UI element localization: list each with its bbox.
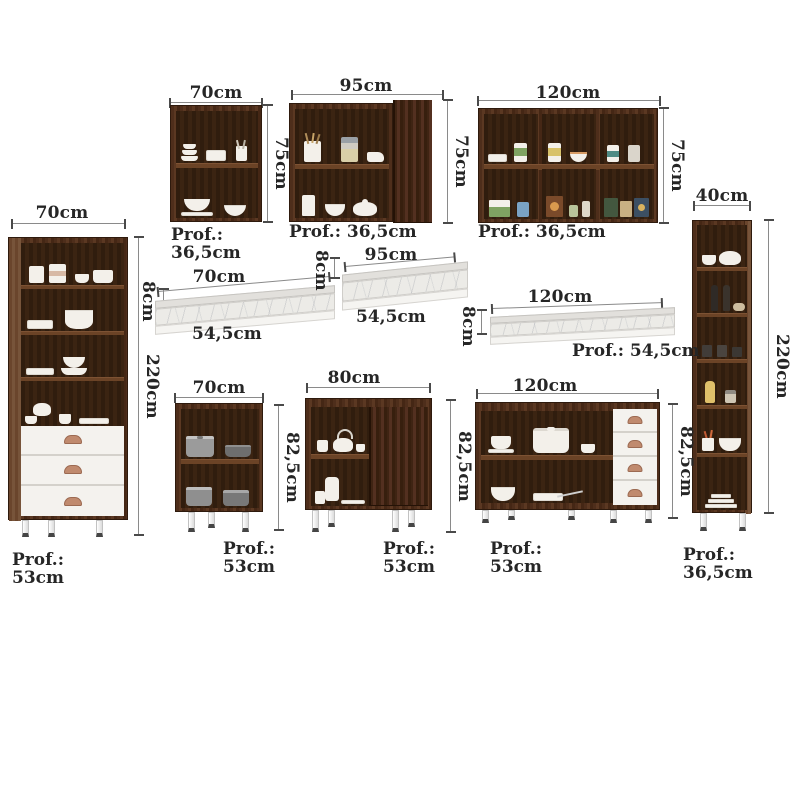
- cup-decoration: [75, 274, 89, 283]
- spoon-decoration: [557, 490, 583, 497]
- height-dimension-line: [267, 105, 268, 222]
- cabinet-body: [289, 103, 393, 222]
- width-dimension-line: [478, 100, 660, 101]
- shelf-compartment: [311, 459, 369, 506]
- width-dimension-line: [477, 393, 658, 394]
- cabinet-body: [478, 108, 658, 223]
- shelf-compartment: [176, 111, 258, 163]
- teapot-decoration: [333, 438, 353, 452]
- cup-decoration: [25, 416, 37, 424]
- tray-stack-decoration: [711, 494, 731, 498]
- jar-decoration: [517, 202, 529, 217]
- depth-label-line: Prof.:: [490, 540, 542, 558]
- bowl-decoration: [63, 357, 85, 368]
- pot-knob-decoration: [197, 436, 203, 439]
- cubby: [600, 169, 654, 219]
- cabinet-leg: [645, 510, 652, 523]
- tray-stack-decoration: [708, 499, 734, 503]
- depth-label: Prof.: 53cm: [223, 540, 275, 577]
- depth-label-line: Prof.: 36,5cm: [478, 223, 606, 241]
- cabinet-leg: [482, 510, 489, 523]
- cup-saucer-decoration: [491, 436, 511, 449]
- jar-decoration: [569, 205, 578, 217]
- cabinet-side-panel: [9, 238, 21, 521]
- depth-label-line: 54,5cm: [192, 325, 262, 343]
- bowl-decoration: [65, 310, 93, 329]
- cubby: [697, 225, 747, 267]
- cubby: [697, 363, 747, 405]
- jar-decoration: [725, 390, 736, 403]
- plate-stack-decoration: [488, 154, 507, 162]
- width-dimension-line: [292, 94, 443, 95]
- width-dimension-line: [170, 102, 262, 103]
- bowl-decoration: [325, 204, 345, 216]
- height-dimension-line: [672, 404, 673, 518]
- glass-jar-decoration: [341, 137, 358, 162]
- cup-decoration: [59, 414, 71, 424]
- food-packet-decoration: [604, 198, 618, 217]
- drawer: [21, 486, 124, 516]
- bowl-decoration: [719, 438, 741, 451]
- drawer-handle: [628, 464, 643, 472]
- shelf-compartment: [481, 411, 613, 455]
- depth-label-line: 53cm: [12, 569, 64, 587]
- depth-label-line: 53cm: [223, 558, 275, 576]
- cabinet-leg: [408, 510, 415, 527]
- plate-stack-decoration: [79, 418, 109, 424]
- thickness-dimension-line: [334, 258, 335, 278]
- shelf-compartment: [181, 464, 259, 508]
- kitchen-set-dimensions-diagram: 70cm 75cm Prof.: 36,5cm: [0, 0, 800, 800]
- food-packet-dot-decoration: [638, 204, 645, 211]
- drawer: [613, 481, 657, 505]
- cabinet-leg: [188, 512, 195, 532]
- pot-decoration: [186, 436, 214, 457]
- thickness-label: 8cm: [458, 306, 478, 342]
- shelf-compartment: [21, 243, 124, 285]
- depth-label-line: Prof.:: [171, 226, 241, 244]
- drawer-handle: [64, 435, 82, 444]
- drawer-handle: [628, 440, 643, 448]
- cabinet-leg: [700, 513, 707, 531]
- width-label: 70cm: [12, 203, 112, 223]
- plate-decoration: [341, 500, 365, 504]
- shelf-compartment: [21, 381, 124, 426]
- utensil-cup-decoration: [702, 438, 714, 451]
- pot-decoration: [223, 490, 249, 506]
- cubby: [600, 114, 654, 164]
- width-label: 70cm: [169, 267, 269, 287]
- shelf-compartment: [21, 335, 124, 377]
- cubby: [484, 114, 538, 164]
- drawer: [613, 433, 657, 457]
- drawer-handle: [628, 489, 643, 497]
- jar-decoration: [607, 145, 619, 162]
- jug-decoration: [315, 491, 325, 504]
- plate-stack-decoration: [26, 368, 54, 375]
- stockpot-decoration: [533, 428, 569, 453]
- cubby: [542, 114, 596, 164]
- carafe-decoration: [325, 477, 339, 501]
- cabinet-leg: [610, 510, 617, 523]
- cup-decoration: [702, 255, 716, 265]
- height-dimension-line: [278, 405, 279, 530]
- shelf-compartment: [181, 409, 259, 459]
- cubby: [697, 409, 747, 453]
- cabinet-leg: [208, 512, 215, 528]
- bowl-decoration: [491, 487, 515, 501]
- plate-decoration: [181, 212, 213, 216]
- countertop-slab: [490, 307, 675, 345]
- teapot-decoration: [353, 202, 377, 216]
- width-label: 40cm: [672, 186, 772, 206]
- depth-label-line: Prof.:: [223, 540, 275, 558]
- depth-label: Prof.: 53cm: [12, 551, 64, 588]
- depth-label-line: 53cm: [383, 558, 435, 576]
- canister-decoration: [29, 266, 44, 283]
- canister-decoration: [514, 143, 527, 162]
- cup-decoration: [93, 270, 113, 283]
- depth-label-line: 54,5cm: [356, 308, 426, 326]
- pan-decoration: [225, 445, 251, 457]
- bowl-decoration: [224, 205, 246, 216]
- cabinet-leg: [568, 510, 575, 520]
- shelf-compartment: [481, 460, 613, 503]
- drawer: [613, 457, 657, 481]
- cubby: [484, 169, 538, 219]
- bowl-decoration: [184, 199, 210, 211]
- cabinet-door: [393, 100, 432, 223]
- bottle-decoration: [582, 201, 590, 217]
- canister-decoration: [49, 264, 66, 283]
- height-dimension-line: [768, 220, 769, 513]
- width-dimension-line: [694, 205, 750, 206]
- plate-stack-decoration: [27, 320, 53, 329]
- oil-bottle-decoration: [705, 381, 715, 403]
- cabinet-door: [369, 407, 428, 506]
- depth-label: Prof.: 53cm: [383, 540, 435, 577]
- pot-decoration: [186, 487, 212, 506]
- cabinet-body: [170, 105, 262, 222]
- gravy-boat-decoration: [367, 152, 384, 162]
- pot-knob-decoration: [547, 427, 555, 431]
- shelf-compartment: [176, 168, 258, 218]
- depth-label: Prof.: 36,5cm: [478, 223, 606, 241]
- cabinet-leg: [392, 510, 399, 532]
- cup-stack-decoration: [181, 156, 198, 161]
- cabinet-body: [8, 237, 128, 520]
- drawer: [21, 426, 124, 456]
- shelf-compartment: [311, 407, 369, 454]
- depth-label: 54,5cm: [192, 325, 262, 343]
- plate-stack-decoration: [206, 150, 226, 161]
- cubby: [697, 457, 747, 510]
- drawer: [613, 409, 657, 433]
- depth-label-line: Prof.:: [383, 540, 435, 558]
- tray-stack-decoration: [705, 504, 737, 508]
- food-packet-dot-decoration: [550, 202, 559, 211]
- width-dimension-line: [175, 397, 263, 398]
- drawer-handle: [64, 497, 82, 506]
- glass-decoration: [732, 347, 742, 357]
- cabinet-leg: [48, 520, 55, 537]
- jar-decoration: [628, 145, 640, 162]
- cabinet-leg: [508, 510, 515, 520]
- drawer-section: [21, 426, 124, 516]
- cabinet-leg: [739, 513, 746, 531]
- cubby: [542, 169, 596, 219]
- wine-bottle-decoration: [711, 285, 718, 311]
- thickness-dimension-line: [481, 310, 482, 334]
- depth-label: 54,5cm: [356, 308, 426, 326]
- height-label: 82,5cm: [676, 404, 696, 518]
- thickness-label: 8cm: [311, 250, 331, 286]
- cup-stack-decoration: [182, 150, 197, 155]
- cabinet-leg: [328, 510, 335, 527]
- glass-decoration: [717, 345, 727, 357]
- teapot-decoration: [33, 403, 51, 416]
- base-cabinet-80: 80cm 82,5cm Prof.: 53cm: [280, 360, 475, 585]
- cabinet-body: [305, 398, 432, 510]
- teapot-decoration: [719, 251, 741, 265]
- drawer: [21, 456, 124, 486]
- depth-label: Prof.: 54,5cm: [572, 342, 700, 360]
- width-dimension-line: [12, 223, 125, 224]
- depth-label-line: 53cm: [490, 558, 542, 576]
- cubby: [697, 317, 747, 359]
- drawer-section: [613, 409, 657, 505]
- cabinet-leg: [22, 520, 29, 537]
- cabinet-leg: [312, 510, 319, 532]
- countertop-120: 120cm 8cm Prof.: 54,5cm: [450, 282, 695, 367]
- cabinet-body: [475, 402, 660, 510]
- width-label: 95cm: [316, 76, 416, 96]
- depth-label-line: Prof.:: [12, 551, 64, 569]
- shelf-compartment: [21, 289, 124, 331]
- height-label: 220cm: [772, 220, 792, 513]
- drawer-handle: [628, 416, 643, 424]
- food-box-decoration: [489, 200, 510, 217]
- width-label: 80cm: [304, 368, 404, 388]
- cabinet-leg: [242, 512, 249, 532]
- cabinet-body: [175, 403, 263, 512]
- depth-label: Prof.: 53cm: [490, 540, 542, 577]
- shelf-compartment: [295, 109, 389, 164]
- drawer-handle: [64, 465, 82, 474]
- cubby: [697, 271, 747, 313]
- milk-jug-decoration: [317, 440, 328, 452]
- food-packet-decoration: [620, 201, 632, 217]
- base-cabinet-120: 120cm: [450, 368, 695, 583]
- cup-stack-decoration: [183, 144, 196, 149]
- cabinet-leg: [96, 520, 103, 537]
- wine-bottle-decoration: [723, 285, 730, 311]
- width-label: 70cm: [170, 83, 262, 103]
- height-dimension-line: [447, 100, 448, 223]
- bowl-decoration: [570, 152, 587, 162]
- bottle-decoration: [302, 195, 315, 216]
- teapot-handle-decoration: [337, 429, 353, 439]
- cup-decoration: [356, 444, 365, 452]
- bowl-decoration: [61, 368, 87, 375]
- width-dimension-line: [307, 387, 430, 388]
- bread-decoration: [733, 303, 745, 311]
- glass-decoration: [702, 345, 712, 357]
- depth-label-line: Prof.: 54,5cm: [572, 342, 700, 360]
- teapot-lid-decoration: [362, 199, 368, 203]
- cup-decoration: [581, 444, 595, 453]
- saucer-decoration: [488, 449, 514, 453]
- cabinet-body: [692, 220, 752, 513]
- width-label: 70cm: [169, 378, 269, 398]
- height-dimension-line: [663, 108, 664, 223]
- shelf-compartment: [295, 169, 389, 218]
- wall-cabinet-120: 120cm: [455, 80, 695, 260]
- canister-decoration: [548, 143, 561, 162]
